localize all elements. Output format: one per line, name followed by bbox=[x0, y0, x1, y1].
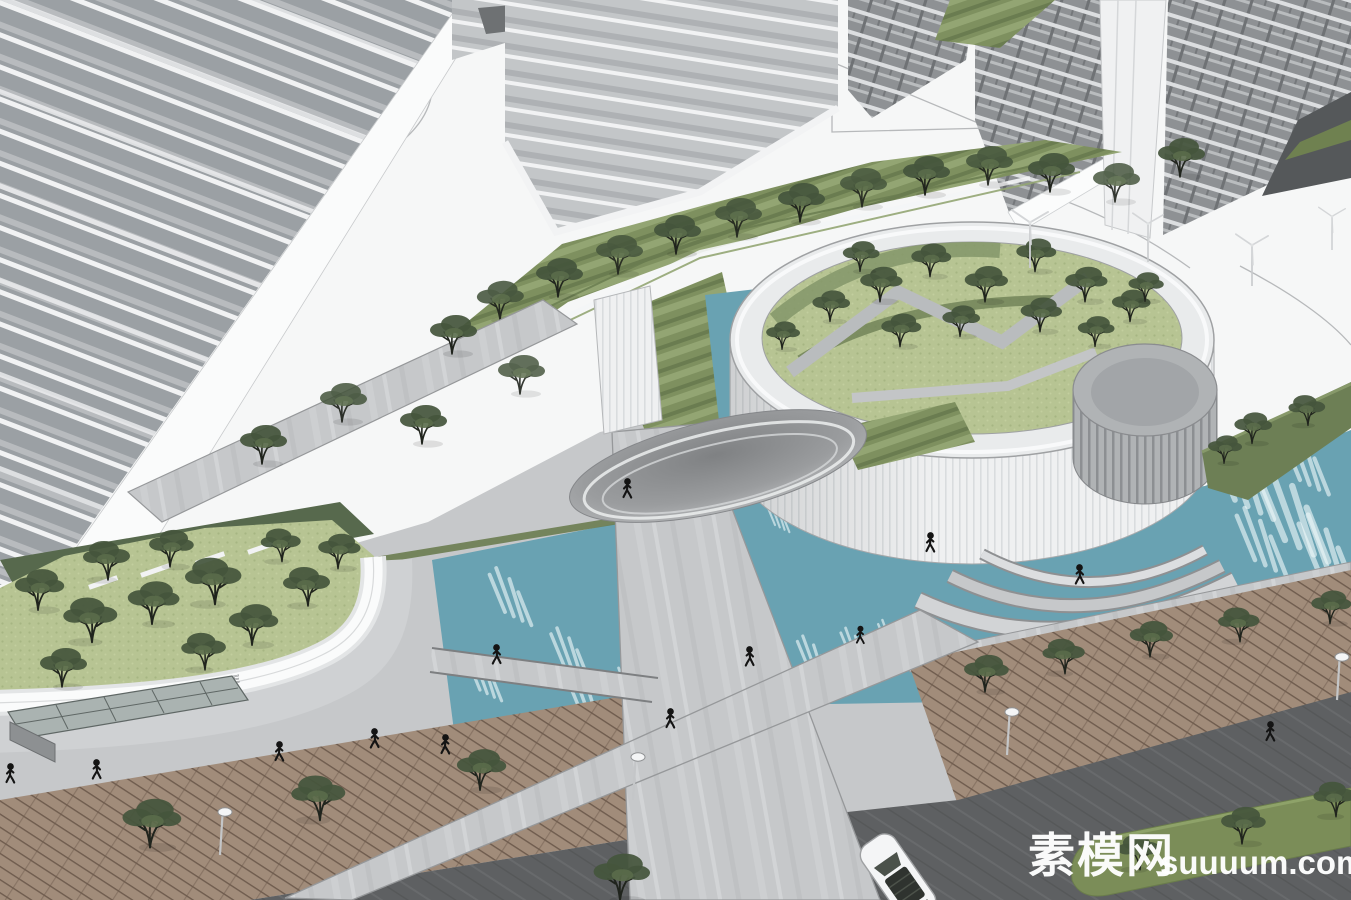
watermark-en: suuuum.com bbox=[1160, 844, 1351, 881]
watermark-cn: 素模网 bbox=[1028, 829, 1175, 882]
rendering-canvas: LIFESTORE bbox=[0, 0, 1351, 900]
slat-wall bbox=[594, 286, 662, 434]
cylindrical-drum bbox=[1073, 344, 1217, 504]
architectural-rendering: LIFESTORE bbox=[0, 0, 1351, 900]
